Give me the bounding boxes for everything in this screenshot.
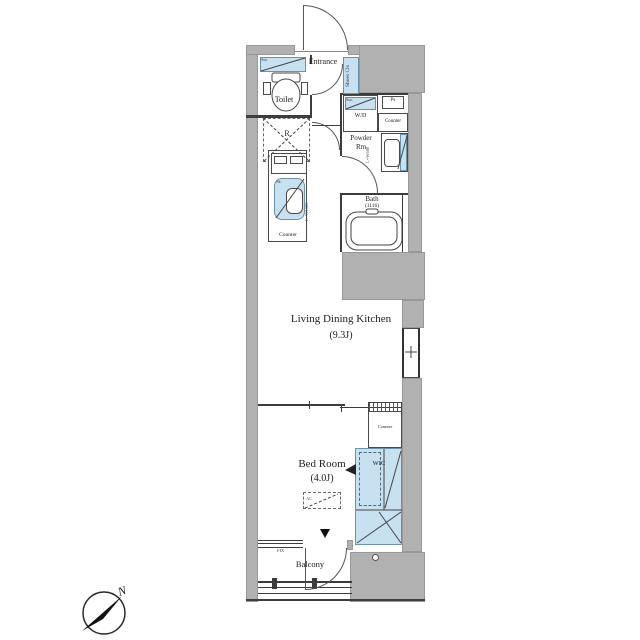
ac-unit-label: AC [306,496,312,501]
fix-window-mid [258,543,303,544]
entrance-door-leaf [303,5,304,50]
fix-window-top [258,540,303,541]
balcony-door-triangle [320,529,330,538]
wall-right-upper [408,93,422,252]
compass-north-label: N [116,583,128,599]
floor-plan: Toilet Sto. Entrance Shoes Cls Sto. W/D … [0,0,640,640]
washbasin-note: L=W600 [365,140,370,170]
plan-bottom-edge [246,599,425,601]
pipe-space-label: Ps [382,98,404,104]
bath-size-label: (1116) [352,203,392,210]
entrance-door-arc [303,5,348,50]
washbasin-bowl [384,139,400,167]
bathtub-outer [346,212,402,250]
partition-tick-2 [341,404,342,412]
powder-counter-label: Counter [378,119,408,125]
entrance-sill-line [295,51,348,52]
bathtub-tap [366,209,378,214]
fridge-label: R [280,129,294,139]
sliding-partition-a [258,404,345,406]
ldk-label: Living Dining Kitchen [281,313,401,326]
bedroom-counter-label: Counter [368,424,402,429]
powder-room-label-2: Rm [341,143,381,151]
wall-right-lower [402,378,422,552]
bedroom-counter-box [368,411,402,448]
ldk-size-label: (9.3J) [311,330,371,342]
balcony-rail-3 [258,593,352,594]
stove-burner-1 [274,156,287,164]
toilet-storage-label: Sto. [261,57,268,62]
wall-right-column [402,300,424,328]
wall-top-left [246,45,295,55]
wall-bath-right [402,195,403,252]
toilet-label: Toilet [258,95,310,105]
washer-storage-label: Sto. [346,97,353,102]
bedroom-label: Bed Room [277,458,367,471]
compass-circle [83,592,125,634]
wall-stub-balcony [347,540,353,550]
fix-window-label: FIX [277,548,284,553]
wall-left [246,45,258,602]
wall-powder-left-b [340,193,342,252]
stove-burner-2 [290,156,303,164]
entrance-label: Entrance [304,57,342,67]
wall-topright-block [359,45,425,93]
shoes-closet-label: Shoes Cls [345,59,352,93]
compass-needle [82,596,122,631]
powder-room-door-arc [342,156,378,193]
wall-bottomright-block [350,552,425,602]
balcony-label: Balcony [286,559,334,569]
bedroom-size-label: (4.0J) [292,473,352,485]
powder-room-label-1: Powder [341,134,381,142]
toilet-seat [272,73,300,82]
sink-label: Sk. [276,179,282,184]
wall-toilet-right-b [310,95,312,117]
kitchen-sink-basin [286,188,303,214]
bathtub-inner [351,217,397,245]
wic-label: WIC [361,460,397,468]
balcony-drain-mark [372,554,379,561]
toilet-armrest-right [301,82,308,95]
balcony-rail-post-1 [272,578,277,589]
hallway-door-arc [312,122,340,150]
toilet-door-arc [312,64,343,95]
kitchen-counter-label: Counter [271,232,305,239]
ldk-window [402,328,420,378]
kitchen-note: L=W1300 [304,195,309,229]
washer-dryer-label: W/D [345,113,376,120]
washbasin-blue-strip [400,134,407,171]
toilet-armrest-left [263,82,271,95]
wall-below-bath [342,252,425,300]
partition-tick-1 [309,401,310,409]
